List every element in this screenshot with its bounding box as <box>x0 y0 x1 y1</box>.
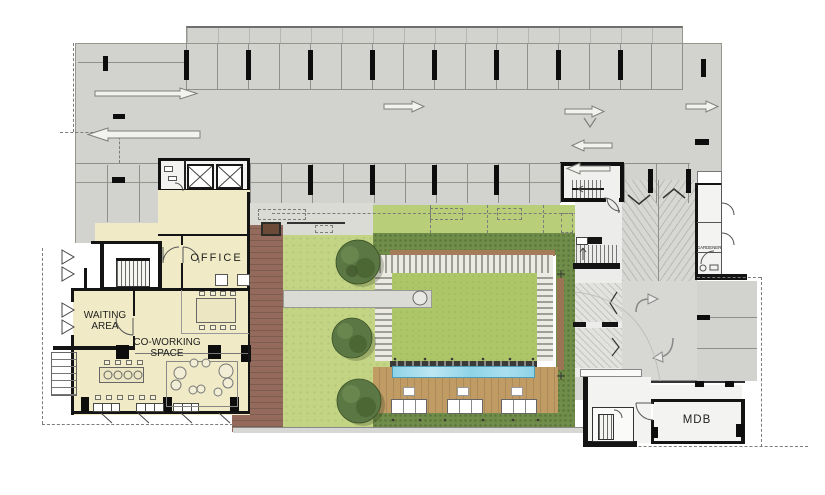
column-marker <box>618 50 623 80</box>
parking-stall-divider <box>624 163 625 203</box>
overhang-dashed <box>487 205 488 233</box>
chair <box>104 360 110 365</box>
parking-stall-divider <box>281 163 282 203</box>
parking-stalls-right <box>697 281 757 381</box>
meeting-nook-line <box>181 333 249 334</box>
gardener-label: GARDENER <box>697 246 721 251</box>
waiting-area-label: WAITING AREA <box>70 311 140 333</box>
chair <box>126 360 132 365</box>
seating-steps-right <box>537 273 553 361</box>
property-dashed <box>42 424 233 425</box>
wall <box>697 183 721 185</box>
parking-stall-divider <box>560 163 561 203</box>
wall <box>287 222 345 224</box>
corridor <box>95 223 160 243</box>
sidewalk <box>233 427 583 433</box>
parking-stall-divider <box>465 43 466 89</box>
entry-stair <box>51 352 77 396</box>
property-dashed <box>42 248 43 424</box>
column-marker <box>697 315 710 320</box>
parking-stall-divider <box>250 163 251 203</box>
lounge-room <box>166 361 238 407</box>
chair <box>220 325 226 330</box>
wall <box>651 399 654 404</box>
chair <box>115 360 121 365</box>
parking-stall-divider <box>217 43 218 89</box>
column-marker <box>494 50 499 80</box>
column-marker <box>494 165 499 195</box>
chair <box>117 395 123 400</box>
meeting-table <box>196 298 236 323</box>
wall <box>71 288 74 302</box>
overhang-dashed-box <box>497 208 522 220</box>
office-label: OFFICE <box>183 253 250 265</box>
chair <box>137 360 143 365</box>
overhang-dashed-box <box>561 213 573 233</box>
column-marker <box>370 165 375 195</box>
parking-stall-divider <box>651 43 652 89</box>
stall-line <box>697 348 757 349</box>
column-marker <box>370 50 375 80</box>
wall <box>653 441 745 444</box>
wall <box>181 263 183 290</box>
parking-top-band <box>186 26 683 43</box>
ramp-turn-area <box>622 281 697 381</box>
window <box>93 403 120 412</box>
lawn-center <box>392 273 537 361</box>
pool <box>392 366 535 378</box>
boundary-dashed <box>119 132 120 163</box>
seating-steps-left <box>375 273 392 361</box>
daybed <box>501 399 537 414</box>
lawn-top-strip <box>373 205 577 235</box>
overhang-dashed-box <box>258 209 306 220</box>
wall-stub <box>112 177 125 183</box>
corridor-hatch <box>575 283 622 322</box>
chair <box>139 395 145 400</box>
column-marker <box>103 56 108 71</box>
chair <box>106 395 112 400</box>
chair <box>230 291 236 296</box>
parking-stall-divider <box>341 43 342 89</box>
column-marker <box>701 59 706 77</box>
wall <box>100 243 104 290</box>
seating-steps-top <box>375 255 553 273</box>
overhang-dashed <box>272 213 577 214</box>
wall-stub <box>695 139 709 145</box>
toilet-room-wall <box>184 160 186 190</box>
service-rooms <box>697 183 722 278</box>
chair <box>199 325 205 330</box>
parking-stall-divider <box>403 43 404 89</box>
parking-stall-divider <box>529 163 530 203</box>
long-table <box>99 367 144 383</box>
parking-stall-divider <box>107 165 108 222</box>
boundary-dashed <box>697 277 761 278</box>
wall <box>158 243 162 290</box>
daybed <box>447 399 483 414</box>
column-marker <box>648 169 653 193</box>
column-marker <box>308 50 313 80</box>
walkway <box>283 290 432 308</box>
parking-stall-divider <box>589 43 590 89</box>
pool-cushion <box>511 387 523 396</box>
roof-notch <box>697 171 722 183</box>
parking-stall-divider <box>405 163 406 203</box>
parking-stall-divider <box>527 43 528 89</box>
pool-cushion <box>457 387 469 396</box>
wall <box>741 399 745 444</box>
planter-box <box>261 222 281 236</box>
lower-landing <box>580 369 642 377</box>
stair-landing <box>576 237 588 245</box>
mdb-corridor <box>651 385 742 399</box>
wall-pier <box>652 427 658 438</box>
door-leaf <box>215 274 228 286</box>
wall <box>181 236 183 245</box>
daybed <box>391 399 427 414</box>
window <box>136 403 164 412</box>
wall-pier <box>695 381 704 387</box>
parking-stall-divider <box>656 163 657 203</box>
parking-stall-divider <box>279 43 280 89</box>
wall <box>583 377 588 447</box>
boundary-dashed <box>761 277 762 447</box>
column-marker <box>432 50 437 80</box>
overhang-dashed-box <box>430 208 463 220</box>
elevator-shaft <box>216 164 243 189</box>
chair <box>220 291 226 296</box>
wall <box>695 183 698 278</box>
wall <box>697 222 721 223</box>
column-marker <box>246 50 251 80</box>
coworking-line2: SPACE <box>112 349 222 360</box>
column-marker <box>184 50 189 80</box>
stair-rail <box>572 188 604 190</box>
wall <box>573 263 620 269</box>
stair-rail <box>116 258 150 261</box>
overhang-dashed <box>543 205 544 233</box>
parking-stall-divider <box>682 43 683 89</box>
chair <box>150 395 156 400</box>
timber-deck <box>250 225 283 432</box>
stall-row-line <box>75 163 160 164</box>
chair <box>210 325 216 330</box>
sink-fixture <box>164 166 173 172</box>
pool-cushion <box>403 387 415 396</box>
floor-plan: OFFICE WAITING AREA CO-WORKING SPACE GAR… <box>0 0 825 495</box>
ramp-lane <box>658 180 697 281</box>
wall-stub <box>113 114 125 119</box>
planter-band <box>557 278 564 370</box>
boundary-dashed <box>60 132 119 133</box>
overhang-dashed-box <box>315 225 333 233</box>
wall <box>653 399 742 402</box>
wall-pier <box>725 381 734 387</box>
parking-stall-divider <box>139 165 140 222</box>
ramp-divider <box>658 180 659 281</box>
mdb-label: MDB <box>653 414 741 426</box>
corridor-hatch <box>575 328 622 368</box>
chair <box>230 325 236 330</box>
stair-landing-wall <box>588 237 602 244</box>
stair-treads <box>116 260 150 287</box>
stall-row-line <box>78 62 186 63</box>
coworking-space-label: CO-WORKING SPACE <box>112 338 222 360</box>
wall-stub <box>84 268 87 290</box>
wall <box>248 290 250 412</box>
chair <box>210 291 216 296</box>
waiting-line2: AREA <box>70 322 140 333</box>
chair <box>128 395 134 400</box>
ramp-lane <box>622 180 658 281</box>
lobby <box>158 190 250 236</box>
chair <box>199 291 205 296</box>
column-marker <box>432 165 437 195</box>
parking-stall-divider <box>467 163 468 203</box>
wall-stub <box>573 322 586 327</box>
boundary-dashed <box>73 43 74 132</box>
wall-pier <box>81 397 89 412</box>
column-marker <box>686 169 691 193</box>
column-marker <box>556 50 561 80</box>
garden-stair <box>576 245 620 263</box>
toilet-fixture <box>168 176 177 181</box>
stair-treads <box>598 414 614 440</box>
door-leaf <box>237 274 250 286</box>
wall <box>158 234 250 236</box>
wall-stub <box>602 322 618 327</box>
stall-row-line <box>186 89 683 90</box>
meeting-nook-line <box>181 290 182 333</box>
parking-stall-divider <box>343 163 344 203</box>
wall <box>697 252 721 253</box>
elevator-shaft <box>187 164 214 189</box>
column-marker <box>308 165 313 195</box>
chair <box>95 395 101 400</box>
